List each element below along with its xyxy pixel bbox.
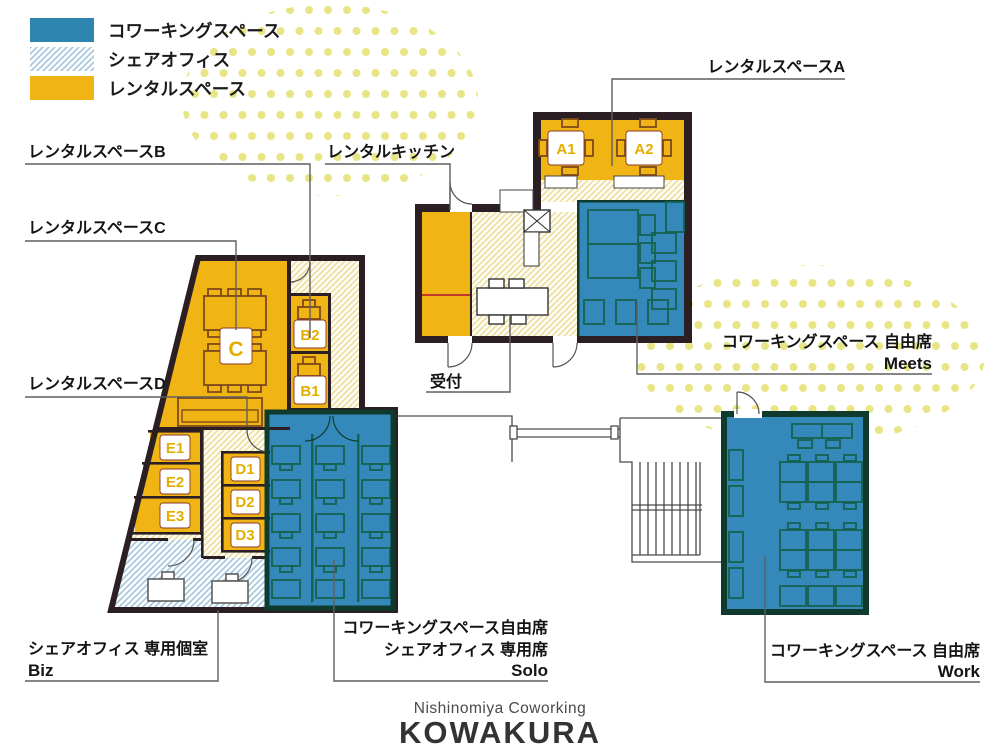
label-rental-kitchen: レンタルキッチン [327,143,455,161]
legend-swatch-shareoffice [30,47,94,71]
room-label-e2: E2 [166,474,184,491]
label-work-1: コワーキングスペース 自由席 [770,641,980,660]
label-solo-2: シェアオフィス 専用席 [384,640,548,659]
label-meets-1: コワーキングスペース 自由席 [722,332,932,351]
legend-label-rental: レンタルスペース [108,79,246,99]
legend-label-shareoffice: シェアオフィス [108,50,230,70]
label-rental-a: レンタルスペースA [707,58,845,76]
floor-plan: A1 A2 C [0,0,1000,750]
room-label-e3: E3 [166,508,184,525]
room-label-a1: A1 [556,141,575,158]
room-label-d2: D2 [235,494,254,511]
label-rental-b: レンタルスペースB [28,143,166,161]
rental-kitchen-area [422,212,470,336]
label-reception: 受付 [430,372,462,391]
room-label-e1: E1 [166,440,184,457]
legend-label-coworking: コワーキングスペース [108,21,280,41]
room-label-c: C [228,338,243,361]
room-label-d3: D3 [235,527,254,544]
label-solo-1: コワーキングスペース自由席 [342,618,548,637]
label-rental-c: レンタルスペースC [28,219,166,237]
stairs-icon [397,416,724,562]
legend-swatch-coworking [30,18,94,42]
coworking-work-area [726,416,864,610]
building-left: C B2 B1 [111,258,395,610]
label-solo-3: Solo [511,661,548,680]
label-biz-2: Biz [28,661,54,680]
coworking-solo-area [267,412,393,608]
label-biz-1: シェアオフィス 専用個室 [28,639,208,658]
building-work [724,392,866,612]
building-center: A1 A2 [415,112,692,367]
room-label-d1: D1 [235,461,254,478]
label-rental-d: レンタルスペースD [28,375,166,393]
floor-plan-page: A1 A2 C [0,0,1000,750]
legend-swatch-rental [30,76,94,100]
room-label-b1: B1 [300,383,319,400]
logo-title: KOWAKURA [399,715,601,750]
logo: Nishinomiya Coworking KOWAKURA [399,700,601,750]
room-label-a2: A2 [634,141,653,158]
label-meets-2: Meets [884,354,932,373]
label-work-2: Work [938,662,981,681]
